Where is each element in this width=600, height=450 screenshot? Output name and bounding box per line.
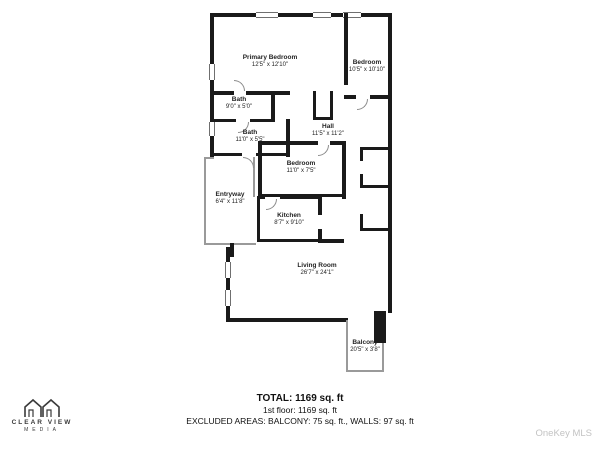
footer-totals: TOTAL: 1169 sq. ft 1st floor: 1169 sq. f… xyxy=(0,393,600,426)
room-name: Entryway xyxy=(215,191,244,199)
balcony-wall-block xyxy=(374,311,386,343)
room-name: Bath xyxy=(226,96,252,104)
room-name: Bedroom xyxy=(286,160,315,168)
room-label-kitchen: Kitchen 8'7" x 9'10" xyxy=(274,212,304,228)
first-floor-area-text: 1st floor: 1169 sq. ft xyxy=(0,405,600,416)
window xyxy=(225,290,231,306)
wall xyxy=(342,141,346,199)
wall xyxy=(257,239,322,242)
door-arc xyxy=(266,199,277,210)
room-dims: 20'5" x 3'8" xyxy=(350,347,380,355)
room-label-living-room: Living Room 26'7" x 24'1" xyxy=(297,262,336,278)
room-dims: 26'7" x 24'1" xyxy=(297,270,336,278)
logo-text-line2: MEDIA xyxy=(10,427,74,433)
room-label-bedroom-middle: Bedroom 11'0" x 7'5" xyxy=(286,160,315,176)
floorplan-canvas: Primary Bedroom 12'5" x 12'10" Bedroom 1… xyxy=(0,0,600,450)
room-label-bath-upper: Bath 9'0" x 5'0" xyxy=(226,96,252,112)
wall xyxy=(388,13,392,313)
room-dims: 11'0" x 7'5" xyxy=(286,168,315,176)
logo-text-line1: CLEAR VIEW xyxy=(10,419,74,426)
wall xyxy=(257,196,260,242)
entryway-outline xyxy=(253,157,255,197)
wall xyxy=(344,95,356,99)
door-arc xyxy=(234,80,245,91)
room-dims: 8'7" x 9'10" xyxy=(274,220,304,228)
window xyxy=(209,64,215,80)
wall xyxy=(250,119,275,122)
room-name: Bath xyxy=(235,129,264,137)
wall xyxy=(280,196,322,199)
room-label-bedroom-top-right: Bedroom 10'5" x 10'10" xyxy=(349,59,385,75)
wall xyxy=(246,91,290,95)
wall xyxy=(271,91,275,122)
excluded-areas-text: EXCLUDED AREAS: BALCONY: 75 sq. ft., WAL… xyxy=(0,416,600,427)
wall xyxy=(210,91,234,95)
wall xyxy=(313,91,316,120)
room-dims: 12'5" x 12'10" xyxy=(243,62,298,70)
room-name: Living Room xyxy=(297,262,336,270)
door-arc xyxy=(357,99,368,110)
room-dims: 11'5" x 11'2" xyxy=(312,131,344,139)
room-label-bath-lower: Bath 11'0" x 5'5" xyxy=(235,129,264,145)
total-area-text: TOTAL: 1169 sq. ft xyxy=(0,393,600,405)
room-name: Primary Bedroom xyxy=(243,54,298,62)
wall xyxy=(210,13,392,17)
door-arc xyxy=(318,145,329,156)
wall xyxy=(360,174,363,188)
room-label-balcony: Balcony 20'5" x 3'8" xyxy=(350,339,380,355)
room-name: Kitchen xyxy=(274,212,304,220)
house-logo-icon xyxy=(10,398,74,418)
wall xyxy=(360,228,390,231)
onekey-mls-watermark: OneKey MLS xyxy=(536,428,593,439)
room-label-entryway: Entryway 6'4" x 11'8" xyxy=(215,191,244,207)
window xyxy=(313,12,331,18)
wall xyxy=(360,147,363,161)
wall xyxy=(286,119,290,157)
wall xyxy=(210,13,214,159)
wall xyxy=(360,185,390,188)
window xyxy=(225,262,231,278)
room-dims: 10'5" x 10'10" xyxy=(349,67,385,75)
room-dims: 11'0" x 5'5" xyxy=(235,137,264,145)
wall xyxy=(258,141,262,197)
room-name: Bedroom xyxy=(349,59,385,67)
wall xyxy=(258,141,318,145)
wall xyxy=(344,13,348,85)
wall xyxy=(313,117,333,120)
balcony-outline xyxy=(346,370,384,372)
wall xyxy=(318,196,322,215)
wall xyxy=(226,318,348,322)
wall xyxy=(360,214,363,231)
wall xyxy=(230,243,234,257)
wall xyxy=(318,239,344,243)
wall xyxy=(226,247,230,320)
entryway-outline xyxy=(204,157,206,245)
room-dims: 6'4" x 11'8" xyxy=(215,199,244,207)
balcony-outline xyxy=(382,343,384,372)
room-dims: 9'0" x 5'0" xyxy=(226,104,252,112)
balcony-outline xyxy=(346,320,348,372)
wall xyxy=(370,95,392,99)
floorplan-page: { "page": { "background": "#ffffff" }, "… xyxy=(0,0,600,450)
room-name: Hall xyxy=(312,123,344,131)
wall xyxy=(210,119,236,122)
clear-view-media-logo: CLEAR VIEW MEDIA xyxy=(10,398,74,433)
wall xyxy=(360,147,390,150)
window xyxy=(209,122,215,136)
room-label-hall: Hall 11'5" x 11'2" xyxy=(312,123,344,139)
room-name: Balcony xyxy=(350,339,380,347)
entryway-outline xyxy=(204,157,214,159)
wall xyxy=(330,91,333,120)
room-label-primary-bedroom: Primary Bedroom 12'5" x 12'10" xyxy=(243,54,298,70)
wall xyxy=(214,153,242,156)
window xyxy=(256,12,278,18)
